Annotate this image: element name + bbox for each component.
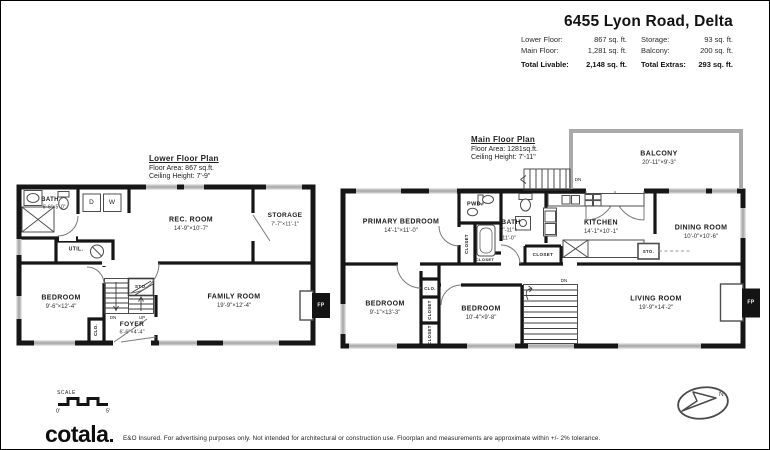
room-label-storage: STORAGE <box>268 213 303 220</box>
room-label-foyer: FOYER <box>120 322 144 329</box>
logo-text: cotala <box>45 421 108 447</box>
stat-row: Lower Floor: 867 sq. ft. <box>521 35 627 46</box>
room-dim-bedroom-3: 10'-4"×9'-8" <box>466 315 497 321</box>
stat-value: 1,281 sq. ft. <box>588 46 627 57</box>
room-dim-dining-room: 10'-0"×10'-6" <box>684 234 718 240</box>
closet-label-a: CLOSET <box>428 300 432 319</box>
closet-label-hall: CLOSET <box>533 252 554 257</box>
closet-label-bath: CLOSET <box>465 234 469 254</box>
stat-value: 2,148 sq. ft. <box>586 60 627 71</box>
room-dim-primary-bedroom: 14'-1"×11'-0" <box>384 228 418 234</box>
header: 6455 Lyon Road, Delta Lower Floor: 867 s… <box>487 13 733 71</box>
room-label-primary-bedroom: PRIMARY BEDROOM <box>363 219 439 226</box>
scale-start: 0' <box>56 409 60 415</box>
washer-label: W <box>109 200 115 207</box>
area-stats: Lower Floor: 867 sq. ft. Main Floor: 1,2… <box>487 35 733 71</box>
room-label-living-room: LIVING ROOM <box>630 296 681 303</box>
room-dim-foyer: 6'-6"×4'-4" <box>119 330 144 336</box>
stat-row: Storage: 93 sq. ft. <box>641 35 733 46</box>
closet-label-clo-main: CLO. <box>424 286 436 290</box>
lower-plan-title-text: Lower Floor Plan <box>149 154 219 163</box>
hearth-lower <box>300 291 313 320</box>
room-dim-bedroom-lower: 9'-6"×12'-4" <box>46 304 77 310</box>
dryer-label: D <box>89 200 94 207</box>
page-title: 6455 Lyon Road, Delta <box>487 13 733 31</box>
stat-row: Main Floor: 1,281 sq. ft. <box>521 46 627 57</box>
room-dim-family-room: 19'-9"×12'-4" <box>217 303 251 309</box>
main-plan-ceiling: Ceiling Height: 7'-11" <box>471 154 538 161</box>
stairs-dn-label-lower: DN <box>110 315 117 320</box>
compass: N <box>676 384 730 422</box>
fireplace-label-main: FP <box>747 300 754 305</box>
stat-label: Storage: <box>641 35 669 46</box>
stairs-dn-label-balcony: DN <box>575 177 582 182</box>
room-dim-rec-room: 14'-9"×10'-7" <box>174 226 208 232</box>
stat-value: 293 sq. ft. <box>698 60 733 71</box>
fireplace-label-lower: FP <box>317 303 324 308</box>
room-dim-balcony: 20'-11"×9'-3" <box>642 160 676 166</box>
closet-label-tub: CLOSET <box>476 258 495 262</box>
closet-label-b: CLOSET <box>428 325 432 344</box>
stats-column-extras: Storage: 93 sq. ft. Balcony: 200 sq. ft.… <box>641 35 733 71</box>
main-plan-title: Main Floor Plan Floor Area: 1281sq.ft. C… <box>471 135 538 161</box>
room-dim-bath-main-2: 11'-0" <box>502 236 516 242</box>
compass-north-label: N <box>719 391 724 398</box>
main-plan-title-text: Main Floor Plan <box>471 135 538 144</box>
room-dim-living-room: 19'-9"×14'-2" <box>639 305 673 311</box>
room-label-dining-room: DINING ROOM <box>675 225 728 232</box>
stat-value: 93 sq. ft. <box>704 35 733 46</box>
room-label-kitchen: KITCHEN <box>584 220 618 227</box>
closet-label-clo-lower: CLO. <box>94 324 99 336</box>
lower-plan-title: Lower Floor Plan Floor Area: 867 sq.ft. … <box>149 154 219 180</box>
room-label-sto-lower: STO. <box>135 285 147 290</box>
stat-label: Total Livable: <box>521 60 569 71</box>
room-label-util: UTIL. <box>69 248 84 253</box>
room-label-bedroom-3: BEDROOM <box>461 306 500 313</box>
cotala-logo: cotala <box>45 421 113 448</box>
scale-end: 5' <box>106 409 110 415</box>
room-dim-kitchen: 14'-1"×10'-1" <box>584 229 618 235</box>
stat-label: Total Extras: <box>641 60 686 71</box>
lower-plan-area: Floor Area: 867 sq.ft. <box>149 165 219 172</box>
room-dim-bedroom-2: 9'-1"×13'-3" <box>370 310 401 316</box>
scale-label: SCALE <box>57 390 76 396</box>
room-label-family-room: FAMILY ROOM <box>207 294 260 301</box>
lower-plan-ceiling: Ceiling Height: 7'-9" <box>149 173 219 180</box>
scale-bar: SCALE 0' 5' <box>56 390 110 415</box>
room-label-rec-room: REC. ROOM <box>169 217 213 224</box>
floorplan-page: SCALE 0' 5' N 6455 Lyon Road, Delta Lowe… <box>0 0 770 450</box>
disclaimer-text: E&O Insured. For advertising purposes on… <box>123 435 600 442</box>
main-plan-area: Floor Area: 1281sq.ft. <box>471 146 538 153</box>
logo-mark <box>110 439 113 442</box>
stat-total-livable: Total Livable: 2,148 sq. ft. <box>521 60 627 71</box>
stat-value: 200 sq. ft. <box>700 46 733 57</box>
room-dim-bath-lower: 6'-6"×5'-0" <box>43 206 66 211</box>
room-label-bath-lower: BATH <box>41 197 59 203</box>
room-label-bedroom-lower: BEDROOM <box>41 295 80 302</box>
stat-label: Lower Floor: <box>521 35 563 46</box>
stairs-up-label-lower: UP <box>139 315 145 320</box>
stat-total-extras: Total Extras: 293 sq. ft. <box>641 60 733 71</box>
room-label-balcony: BALCONY <box>640 151 677 158</box>
stat-value: 867 sq. ft. <box>594 35 627 46</box>
stats-column-livable: Lower Floor: 867 sq. ft. Main Floor: 1,2… <box>521 35 627 71</box>
stat-label: Main Floor: <box>521 46 559 57</box>
stat-row: Balcony: 200 sq. ft. <box>641 46 733 57</box>
room-label-bath-main: BATH <box>501 220 520 227</box>
stairs-dn-label-main: DN <box>561 278 568 283</box>
stat-label: Balcony: <box>641 46 670 57</box>
room-label-sto-main: STO. <box>643 249 654 253</box>
room-dim-bath-main-1: 7'-11"× <box>501 228 518 234</box>
room-dim-storage: 7'-7"×11'-1" <box>271 222 299 228</box>
room-label-pwd: PWD. <box>467 202 483 208</box>
hearth-main <box>721 284 744 321</box>
compass-arrow <box>682 392 716 411</box>
room-label-bedroom-2: BEDROOM <box>365 301 404 308</box>
